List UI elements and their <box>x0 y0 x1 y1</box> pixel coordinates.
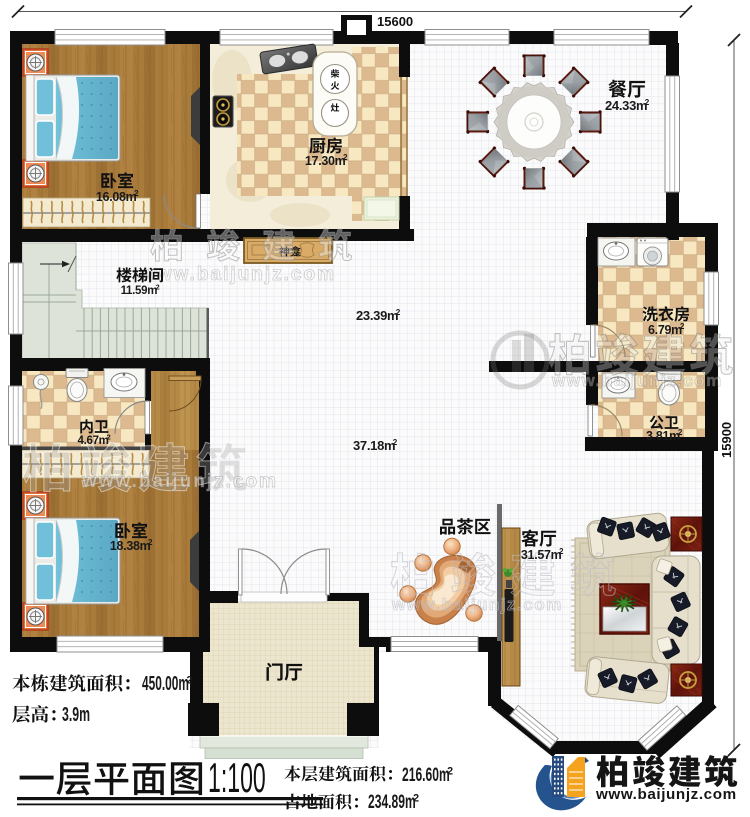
svg-text:2: 2 <box>107 434 111 442</box>
svg-text:2: 2 <box>396 308 401 317</box>
svg-text:2: 2 <box>559 547 564 556</box>
svg-text:www.baijunjz.com: www.baijunjz.com <box>139 264 336 285</box>
svg-text:15900: 15900 <box>719 422 734 458</box>
svg-text:4.67m: 4.67m <box>78 435 109 447</box>
svg-text:2: 2 <box>680 322 685 331</box>
svg-text:450.00m: 450.00m <box>142 672 189 695</box>
svg-text:6.79m: 6.79m <box>648 323 682 337</box>
svg-text:www.baijunjz.com: www.baijunjz.com <box>81 471 278 492</box>
svg-text:2: 2 <box>156 284 160 292</box>
svg-text:16.08m: 16.08m <box>96 190 137 204</box>
svg-text:2: 2 <box>413 793 419 805</box>
svg-text:2: 2 <box>186 674 192 686</box>
svg-text:www.baijunjz.com: www.baijunjz.com <box>595 786 737 803</box>
svg-text:2: 2 <box>447 766 453 778</box>
svg-text:www.baijunjz.com: www.baijunjz.com <box>391 595 563 614</box>
svg-text:24.33m: 24.33m <box>605 98 647 113</box>
svg-text:37.18m: 37.18m <box>353 438 395 453</box>
svg-text:31.57m: 31.57m <box>521 548 562 562</box>
svg-text:2: 2 <box>645 98 650 107</box>
svg-text:2: 2 <box>343 153 348 162</box>
svg-text:2: 2 <box>134 189 139 198</box>
svg-text:2: 2 <box>148 538 153 547</box>
svg-text:11.59m: 11.59m <box>121 285 158 297</box>
svg-text:18.38m: 18.38m <box>110 539 151 553</box>
svg-text:15600: 15600 <box>377 14 413 29</box>
svg-text:23.39m: 23.39m <box>356 308 398 323</box>
svg-text:216.60m: 216.60m <box>402 764 450 786</box>
svg-text:17.30m: 17.30m <box>305 154 346 168</box>
svg-text:www.baijunjz.com: www.baijunjz.com <box>551 371 723 390</box>
svg-text:2: 2 <box>678 428 683 437</box>
svg-text:234.89m: 234.89m <box>368 791 416 813</box>
svg-text:3.81m: 3.81m <box>646 429 680 443</box>
svg-text:2: 2 <box>393 438 398 447</box>
svg-text:1:100: 1:100 <box>208 755 266 802</box>
svg-text:3.9m: 3.9m <box>62 703 90 726</box>
